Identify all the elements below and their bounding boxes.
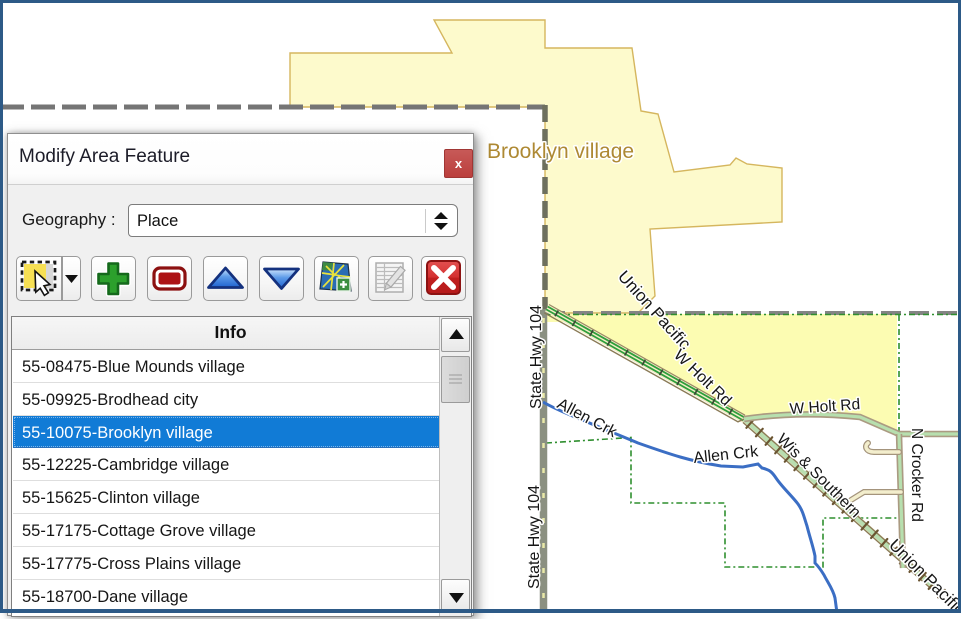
- svg-text:Allen Crk: Allen Crk: [693, 443, 760, 467]
- svg-text:N Crocker Rd: N Crocker Rd: [908, 428, 925, 522]
- svg-text:Allen Crk: Allen Crk: [554, 396, 620, 442]
- svg-text:Union Pacific: Union Pacific: [885, 535, 961, 613]
- svg-text:State Hwy 104: State Hwy 104: [526, 485, 543, 589]
- svg-text:Brooklyn village: Brooklyn village: [487, 140, 634, 163]
- svg-text:State Hwy 104: State Hwy 104: [528, 305, 545, 409]
- svg-text:Wis & Southern: Wis & Southern: [773, 431, 864, 522]
